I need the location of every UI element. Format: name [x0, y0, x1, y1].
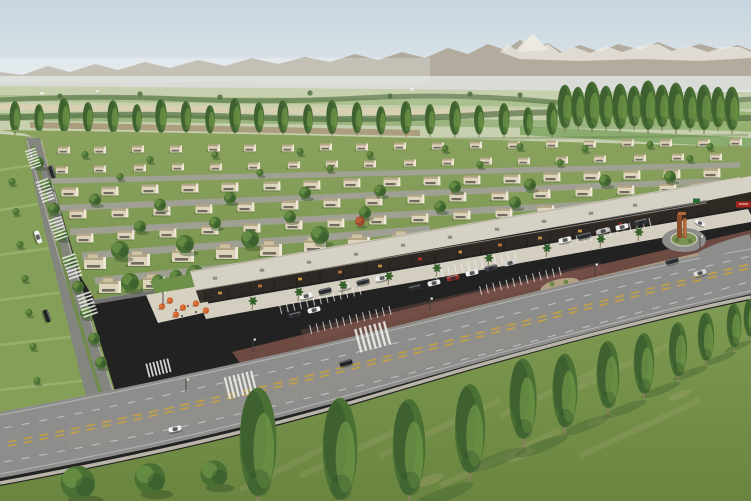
house — [322, 199, 341, 209]
parked-car — [288, 311, 303, 321]
house — [633, 155, 647, 163]
house — [75, 234, 94, 244]
canopy-column — [458, 251, 459, 259]
house — [452, 211, 471, 221]
distant-tree-clump — [217, 94, 222, 99]
house — [593, 156, 607, 164]
house — [709, 154, 723, 162]
house — [441, 159, 455, 167]
rooftop-unit — [260, 269, 264, 272]
house — [342, 179, 361, 189]
house — [180, 184, 199, 194]
house — [355, 144, 369, 152]
canopy-column — [297, 278, 298, 286]
canopy-column — [527, 239, 528, 247]
storefront-glow — [498, 244, 502, 247]
rooftop-unit — [589, 212, 593, 215]
house — [462, 176, 481, 186]
distant-tree-clump — [57, 93, 62, 98]
canopy-column — [343, 271, 344, 279]
house — [209, 164, 223, 172]
house — [382, 178, 401, 188]
green-sign — [693, 199, 700, 204]
house — [116, 231, 135, 241]
house — [574, 188, 593, 198]
distant-tree-clump — [467, 91, 472, 96]
house — [57, 147, 71, 155]
house — [171, 164, 185, 172]
canopy-column — [435, 255, 436, 263]
house — [671, 154, 685, 162]
house — [262, 182, 281, 192]
house — [702, 169, 721, 179]
house — [220, 183, 239, 193]
house — [406, 195, 425, 205]
storefront-glow — [458, 251, 462, 254]
canopy-column — [481, 247, 482, 255]
house — [55, 167, 69, 175]
house — [422, 177, 441, 187]
house — [363, 161, 377, 169]
house — [545, 141, 559, 149]
rooftop-unit — [354, 253, 358, 256]
distant-tree-clump — [517, 92, 522, 97]
storefront-glow — [298, 278, 302, 281]
aerial-architectural-rendering — [0, 0, 751, 501]
canopy-column — [205, 294, 206, 302]
storefront-glow — [538, 237, 542, 240]
house — [490, 192, 509, 202]
house — [582, 172, 601, 182]
house — [60, 188, 79, 198]
house — [100, 187, 119, 197]
parked-car — [307, 306, 322, 316]
house — [281, 145, 295, 153]
round-tree — [88, 333, 103, 347]
storefront-glow — [258, 285, 262, 288]
house — [140, 185, 159, 195]
rooftop-unit — [542, 220, 546, 223]
house — [133, 165, 147, 173]
house — [502, 175, 521, 185]
canopy-column — [320, 274, 321, 282]
house — [469, 142, 483, 150]
storefront-glow — [578, 230, 582, 233]
house — [410, 214, 429, 224]
house — [110, 209, 129, 219]
house — [616, 186, 635, 196]
rooftop-unit — [307, 261, 311, 264]
canopy-column — [573, 231, 574, 239]
house — [319, 144, 333, 152]
rooftop-unit — [213, 277, 217, 280]
storefront-glow — [218, 292, 222, 295]
house — [622, 171, 641, 181]
rooftop-unit — [633, 204, 637, 207]
distant-tree-clump — [307, 90, 312, 95]
render-canvas — [0, 0, 751, 501]
house — [280, 201, 299, 211]
rooftop-unit — [401, 244, 405, 247]
canopy-column — [504, 243, 505, 251]
parked-car — [408, 284, 423, 294]
round-tree — [95, 357, 110, 371]
rooftop-unit — [448, 236, 452, 239]
house — [621, 140, 635, 148]
storefront-glow — [418, 258, 422, 261]
storefront-glow — [338, 271, 342, 274]
storefront-glow — [378, 265, 382, 268]
house — [517, 158, 531, 166]
canopy-column — [228, 290, 229, 298]
canopy-column — [550, 235, 551, 243]
house — [403, 160, 417, 168]
house — [243, 145, 257, 153]
house — [158, 229, 177, 239]
canopy-column — [274, 282, 275, 290]
rooftop-unit — [495, 228, 499, 231]
house — [207, 145, 221, 153]
distant-tree-clump — [137, 91, 142, 96]
house — [93, 147, 107, 155]
house — [542, 173, 561, 183]
house — [247, 163, 261, 171]
canopy-column — [389, 263, 390, 271]
distant-tree-clump — [387, 93, 392, 98]
sign-text-line — [739, 204, 748, 205]
canopy-column — [251, 286, 252, 294]
house — [131, 146, 145, 154]
house — [287, 162, 301, 170]
house — [729, 139, 743, 147]
crosswalk — [145, 358, 171, 377]
house — [169, 146, 183, 154]
house — [93, 166, 107, 174]
house — [68, 210, 87, 220]
house — [393, 143, 407, 151]
canopy-column — [366, 267, 367, 275]
house — [194, 205, 213, 215]
house — [659, 140, 673, 148]
house — [326, 219, 345, 229]
canopy-column — [412, 259, 413, 267]
parked-car — [427, 279, 442, 289]
